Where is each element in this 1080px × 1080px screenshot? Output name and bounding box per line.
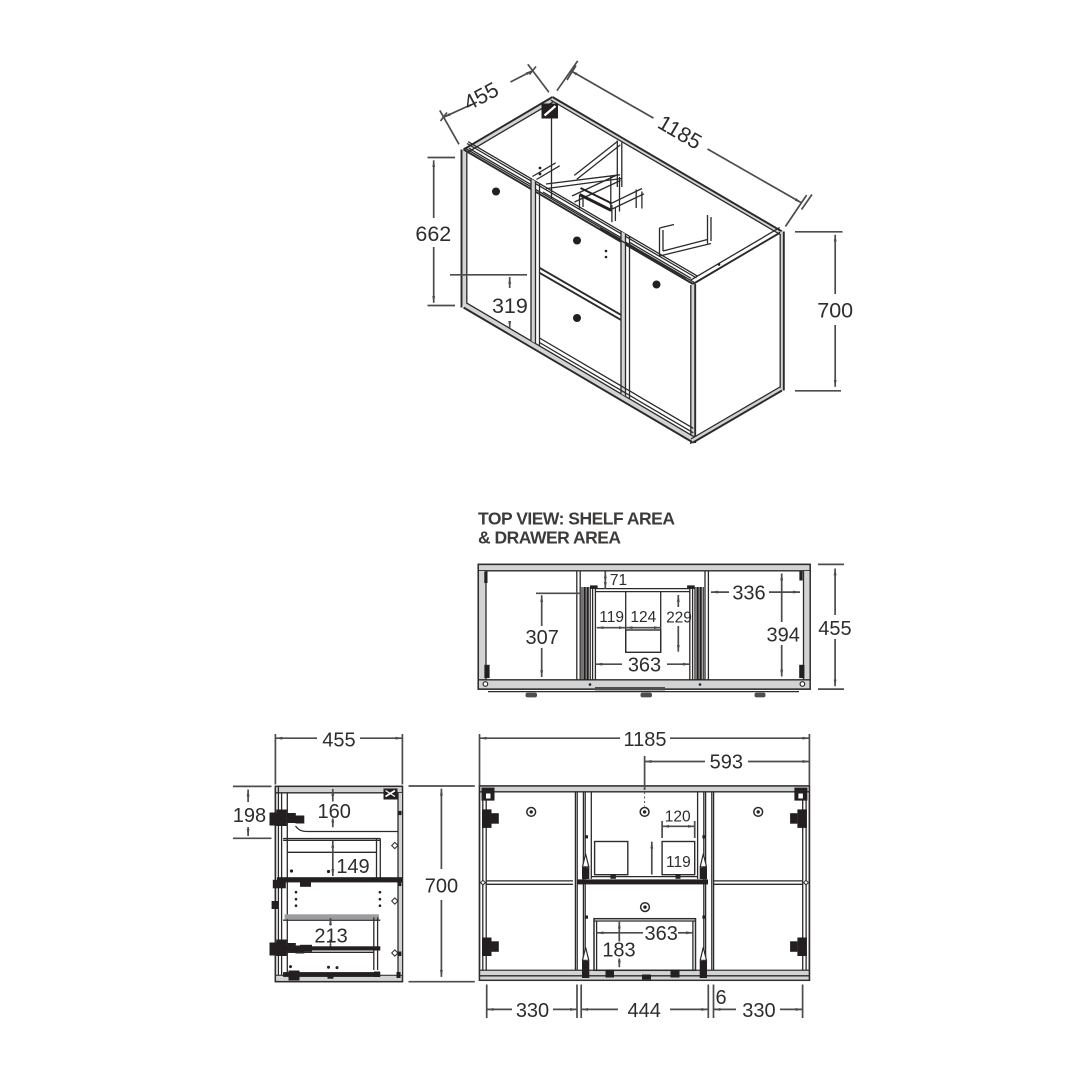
svg-text:213: 213 <box>314 926 347 948</box>
svg-text:319: 319 <box>492 294 528 318</box>
svg-text:71: 71 <box>610 572 627 589</box>
svg-text:363: 363 <box>645 923 678 945</box>
svg-text:593: 593 <box>710 752 743 774</box>
svg-text:124: 124 <box>630 609 656 626</box>
svg-text:183: 183 <box>602 940 635 962</box>
svg-text:444: 444 <box>628 1000 661 1022</box>
svg-text:394: 394 <box>767 625 800 647</box>
svg-text:363: 363 <box>628 655 661 677</box>
svg-text:229: 229 <box>666 610 692 627</box>
svg-text:700: 700 <box>817 298 853 322</box>
svg-text:455: 455 <box>818 618 851 640</box>
svg-text:330: 330 <box>742 1000 775 1022</box>
svg-text:160: 160 <box>318 801 351 823</box>
svg-text:336: 336 <box>732 582 765 604</box>
svg-text:TOP VIEW: SHELF AREA: TOP VIEW: SHELF AREA <box>478 509 675 529</box>
svg-text:455: 455 <box>322 729 355 751</box>
svg-text:149: 149 <box>336 856 369 878</box>
svg-text:700: 700 <box>425 875 458 897</box>
svg-text:119: 119 <box>599 609 624 626</box>
svg-text:1185: 1185 <box>623 729 666 751</box>
svg-text:& DRAWER AREA: & DRAWER AREA <box>478 527 621 547</box>
svg-text:120: 120 <box>665 809 691 826</box>
svg-text:198: 198 <box>233 805 266 827</box>
svg-text:307: 307 <box>526 627 559 649</box>
svg-text:119: 119 <box>666 854 691 871</box>
svg-text:6: 6 <box>716 987 727 1009</box>
svg-text:662: 662 <box>415 222 451 246</box>
svg-text:330: 330 <box>516 1000 549 1022</box>
